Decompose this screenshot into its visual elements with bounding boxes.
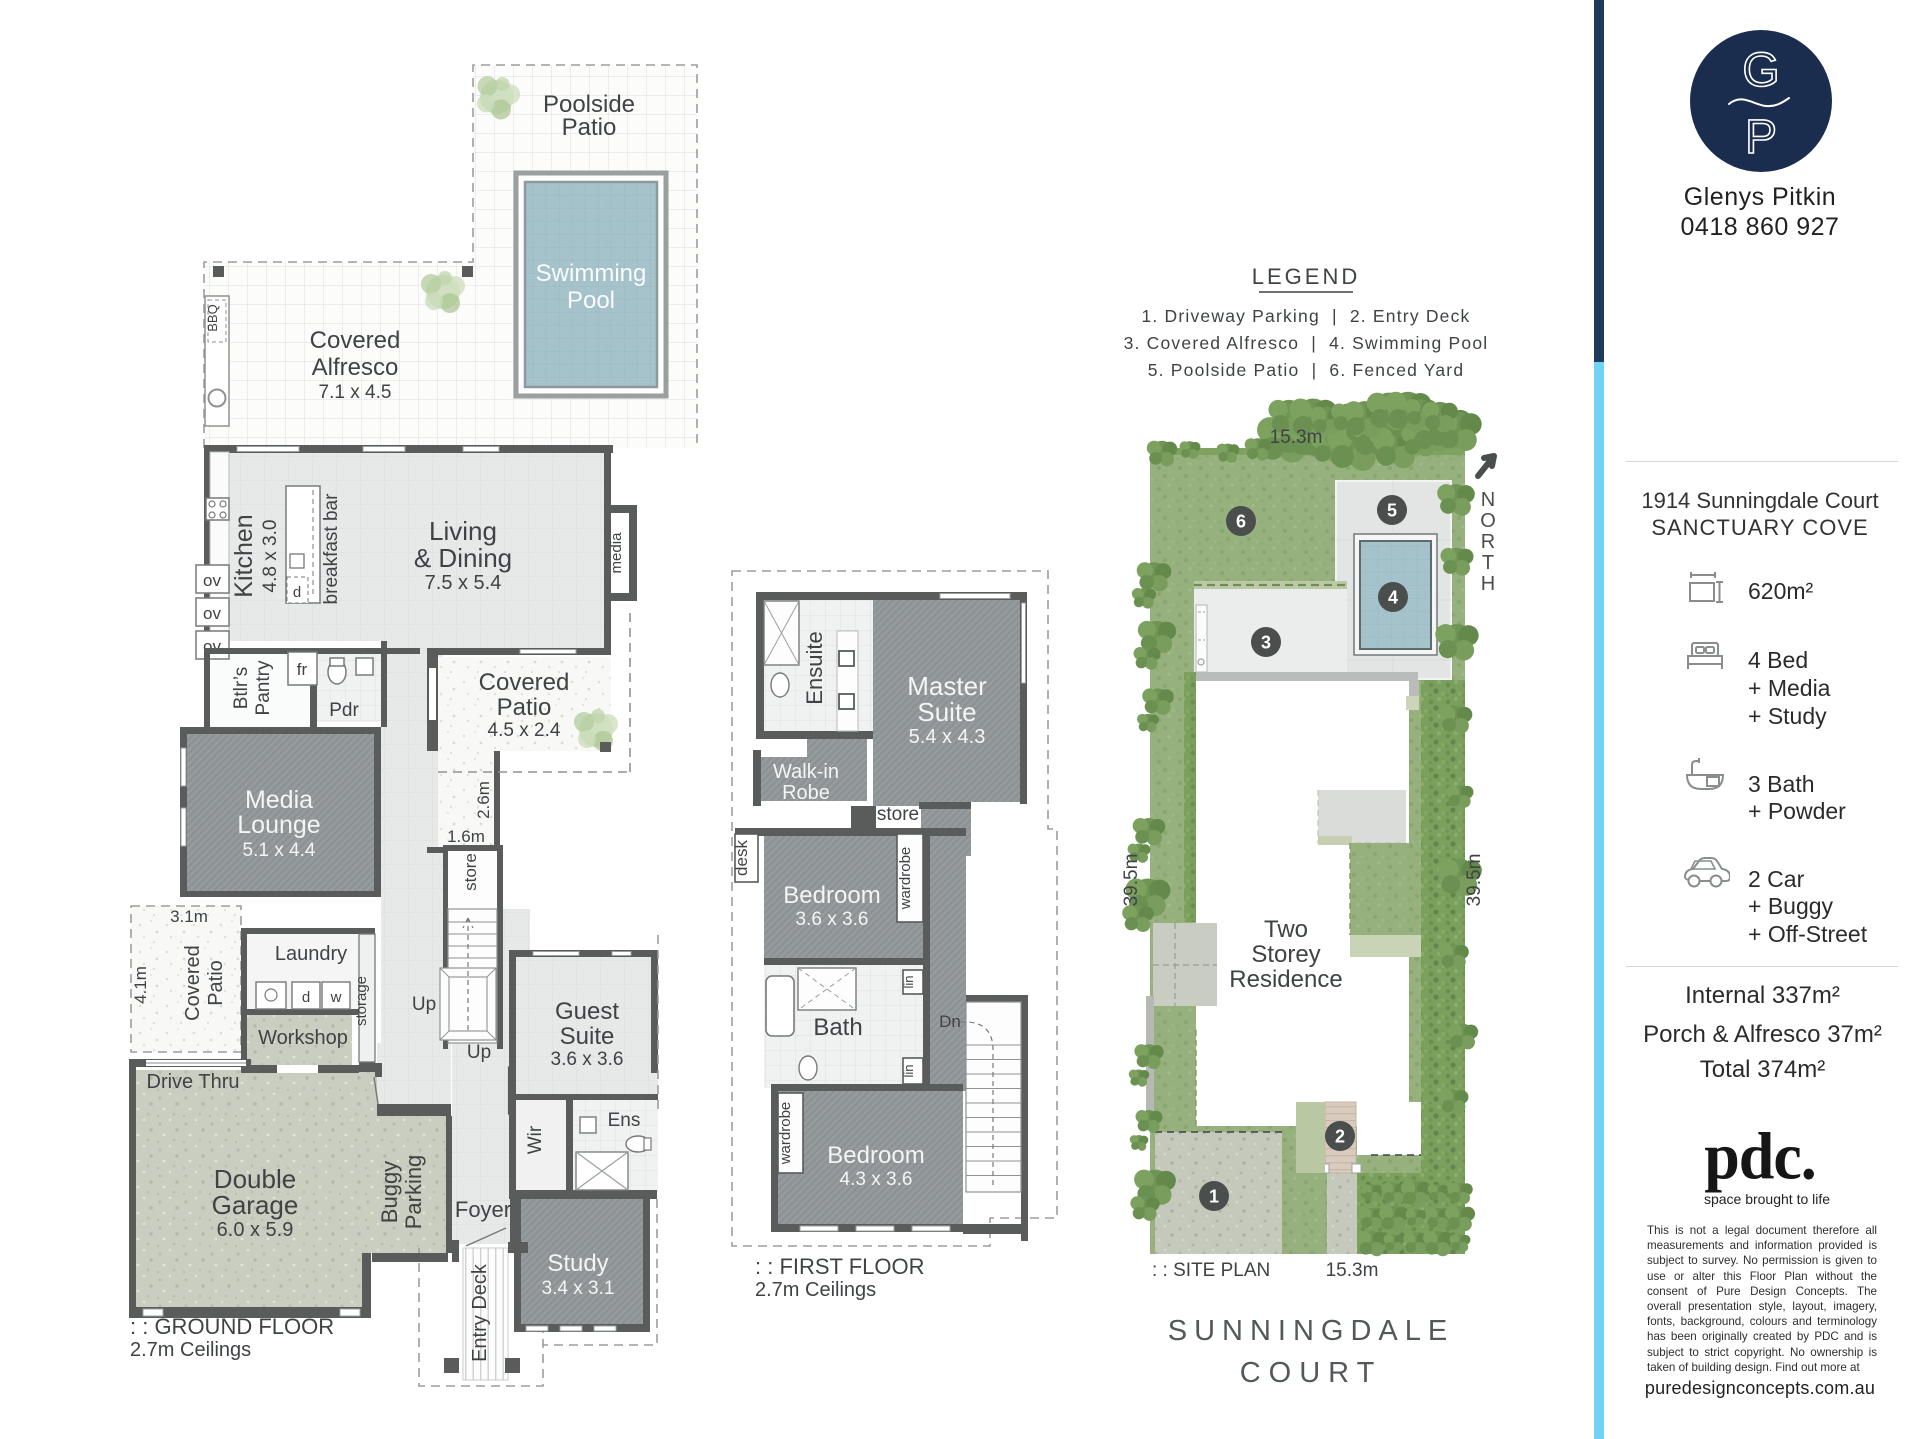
svg-text:G: G xyxy=(1742,44,1779,97)
svg-text:wardrobe: wardrobe xyxy=(897,847,914,911)
svg-text:SUNNINGDALE: SUNNINGDALE xyxy=(1168,1315,1455,1347)
svg-text:lin: lin xyxy=(901,1064,916,1077)
svg-text:3.6 x 3.6: 3.6 x 3.6 xyxy=(796,909,869,930)
svg-text:d: d xyxy=(293,584,301,601)
svg-text:Living: Living xyxy=(429,516,497,546)
svg-text:P: P xyxy=(1745,111,1777,164)
svg-text:Up: Up xyxy=(467,1042,491,1063)
svg-text:Alfresco: Alfresco xyxy=(312,354,399,381)
svg-text:desk: desk xyxy=(732,840,751,876)
svg-text:& Dining: & Dining xyxy=(414,543,512,573)
svg-text:Patio: Patio xyxy=(497,694,552,721)
svg-text:Swimming: Swimming xyxy=(536,260,647,287)
svg-text:wardrobe: wardrobe xyxy=(777,1102,794,1166)
svg-text:7.5 x 5.4: 7.5 x 5.4 xyxy=(425,572,502,594)
svg-text:H: H xyxy=(1481,573,1495,595)
svg-text:5.1 x 4.4: 5.1 x 4.4 xyxy=(243,840,316,861)
svg-text:Two: Two xyxy=(1264,916,1308,943)
svg-text:Storey: Storey xyxy=(1251,941,1320,968)
svg-text:Pool: Pool xyxy=(567,287,615,314)
svg-text:Covered: Covered xyxy=(310,327,401,354)
svg-text:6.0 x 5.9: 6.0 x 5.9 xyxy=(217,1219,294,1241)
svg-text:O: O xyxy=(1480,510,1496,532)
svg-text:BBQ: BBQ xyxy=(205,304,220,331)
svg-text:Kitchen: Kitchen xyxy=(230,514,258,597)
svg-text:Patio: Patio xyxy=(205,960,227,1006)
svg-text:2.6m: 2.6m xyxy=(474,781,493,819)
svg-text:Suite: Suite xyxy=(560,1023,615,1050)
svg-text:: : GROUND FLOOR: : : GROUND FLOOR xyxy=(130,1314,334,1339)
svg-text:Covered: Covered xyxy=(182,945,204,1021)
svg-text:breakfast bar: breakfast bar xyxy=(321,493,342,605)
svg-text:Bath: Bath xyxy=(813,1014,862,1041)
svg-text:5: 5 xyxy=(1387,501,1397,521)
svg-text:5. Poolside Patio | 6. Fence: 5. Poolside Patio | 6. Fenced Yard xyxy=(1148,360,1465,380)
svg-text:Workshop: Workshop xyxy=(258,1027,348,1049)
svg-text:fr: fr xyxy=(297,660,308,679)
svg-text:Ensuite: Ensuite xyxy=(802,631,827,704)
svg-text:COURT: COURT xyxy=(1240,1357,1383,1389)
svg-text:media: media xyxy=(608,532,625,574)
svg-text:39.5m: 39.5m xyxy=(1121,854,1142,907)
svg-text:Bedroom: Bedroom xyxy=(827,1142,924,1169)
svg-text:Covered: Covered xyxy=(479,669,570,696)
svg-text:6: 6 xyxy=(1236,512,1246,532)
svg-text:Guest: Guest xyxy=(555,998,619,1025)
svg-text:3. Covered Alfresco | 4. Swi: 3. Covered Alfresco | 4. Swimming Pool xyxy=(1124,333,1489,353)
svg-text:ov: ov xyxy=(203,604,221,623)
svg-text:Ens: Ens xyxy=(608,1110,641,1131)
svg-text:: : FIRST FLOOR: : : FIRST FLOOR xyxy=(755,1254,925,1279)
svg-text:R: R xyxy=(1481,531,1495,553)
svg-text:4.1m: 4.1m xyxy=(131,966,150,1004)
svg-text:Lounge: Lounge xyxy=(237,811,320,839)
svg-text:Btlr’s: Btlr’s xyxy=(231,667,252,710)
svg-text:Media: Media xyxy=(245,786,313,814)
svg-text:T: T xyxy=(1482,552,1494,574)
svg-text:15.3m: 15.3m xyxy=(1270,427,1323,448)
svg-text:2.7m Ceilings: 2.7m Ceilings xyxy=(130,1339,251,1361)
svg-text:2.7m Ceilings: 2.7m Ceilings xyxy=(755,1279,876,1301)
svg-text:4.5 x 2.4: 4.5 x 2.4 xyxy=(488,720,561,741)
svg-text:Dn: Dn xyxy=(939,1012,961,1031)
svg-text:Entry Deck: Entry Deck xyxy=(469,1263,491,1362)
svg-text:Pdr: Pdr xyxy=(329,700,359,721)
svg-text:store: store xyxy=(461,853,480,891)
svg-text:3.1m: 3.1m xyxy=(170,907,208,926)
svg-text:3: 3 xyxy=(1261,633,1271,653)
svg-text:Foyer: Foyer xyxy=(455,1197,511,1222)
svg-text:7.1 x 4.5: 7.1 x 4.5 xyxy=(319,382,392,403)
svg-text:Residence: Residence xyxy=(1229,966,1342,993)
svg-text:Up: Up xyxy=(412,994,436,1015)
svg-text:Bedroom: Bedroom xyxy=(783,882,880,909)
svg-text:3.6 x 3.6: 3.6 x 3.6 xyxy=(551,1049,624,1070)
svg-text:Pantry: Pantry xyxy=(253,660,274,715)
svg-text:3.4 x 3.1: 3.4 x 3.1 xyxy=(542,1278,615,1299)
svg-text:1.6m: 1.6m xyxy=(447,827,485,846)
svg-text:ov: ov xyxy=(203,571,221,590)
svg-text:1: 1 xyxy=(1209,1187,1219,1207)
svg-text:d: d xyxy=(302,989,310,1006)
svg-text:pdc.: pdc. xyxy=(1704,1120,1816,1193)
svg-text:4.3 x 3.6: 4.3 x 3.6 xyxy=(840,1169,913,1190)
svg-text:4.8 x 3.0: 4.8 x 3.0 xyxy=(260,520,281,593)
svg-text:4: 4 xyxy=(1388,588,1398,608)
svg-text:Garage: Garage xyxy=(212,1190,299,1220)
svg-text:2: 2 xyxy=(1335,1127,1345,1147)
svg-text:lin: lin xyxy=(901,975,916,988)
svg-text:Walk-in: Walk-in xyxy=(773,761,839,783)
svg-text:Study: Study xyxy=(547,1250,608,1277)
svg-text:Suite: Suite xyxy=(917,697,976,727)
svg-text:Parking: Parking xyxy=(401,1155,426,1230)
svg-text:storage: storage xyxy=(353,976,370,1026)
svg-text:5.4 x 4.3: 5.4 x 4.3 xyxy=(909,726,986,748)
svg-text:store: store xyxy=(877,804,919,825)
svg-text:Robe: Robe xyxy=(782,782,830,804)
svg-text:15.3m: 15.3m xyxy=(1326,1260,1379,1281)
svg-text:Patio: Patio xyxy=(562,114,617,141)
svg-text:Laundry: Laundry xyxy=(275,943,347,965)
svg-text:N: N xyxy=(1481,489,1495,511)
svg-text:1. Driveway Parking | 2. Ent: 1. Driveway Parking | 2. Entry Deck xyxy=(1141,306,1470,326)
svg-text:Wir: Wir xyxy=(525,1125,546,1154)
svg-text:w: w xyxy=(330,989,342,1006)
svg-text:: : SITE PLAN: : : SITE PLAN xyxy=(1152,1260,1270,1281)
svg-text:Buggy: Buggy xyxy=(377,1161,402,1223)
svg-text:39.5m: 39.5m xyxy=(1464,854,1485,907)
svg-text:LEGEND: LEGEND xyxy=(1252,264,1360,289)
svg-text:Drive Thru: Drive Thru xyxy=(147,1071,240,1093)
